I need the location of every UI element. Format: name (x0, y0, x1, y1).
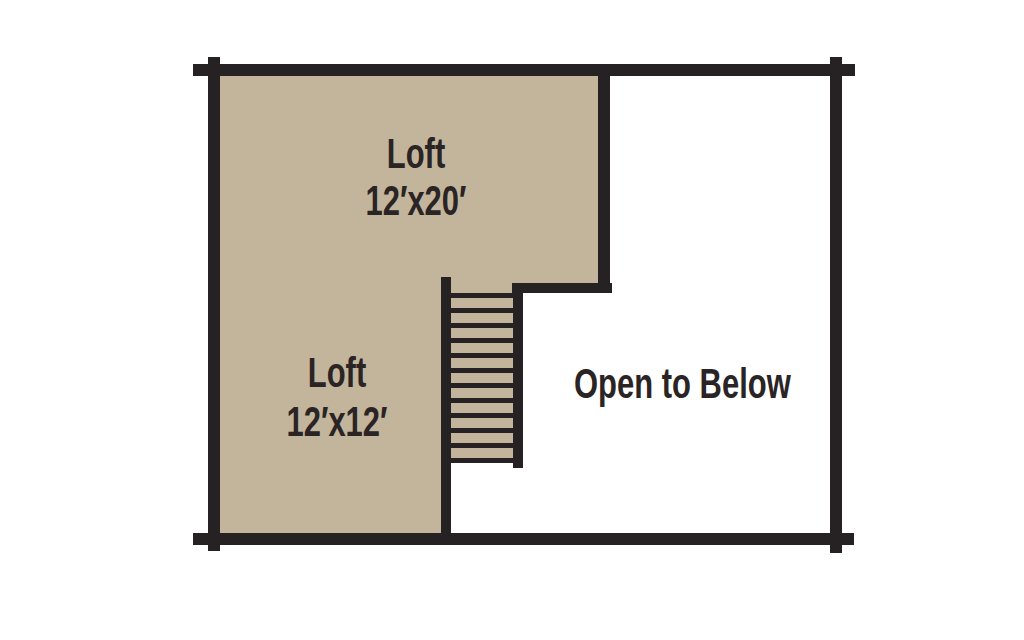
stair-tread (451, 398, 513, 403)
room-label-open-to-below: Open to Below (574, 360, 790, 406)
stair-tread (451, 293, 513, 298)
room-name: Loft (308, 130, 524, 177)
stair-tread (451, 443, 513, 448)
floor-plan: Loft 12′x20′ Loft 12′x12′ Open to Below (0, 0, 1024, 640)
stair-tread (451, 368, 513, 373)
stair-tread (451, 413, 513, 418)
stair-tread (451, 458, 513, 463)
wall-top (193, 64, 855, 76)
stair-tread (451, 308, 513, 313)
wall-right (830, 57, 842, 553)
room-name: Open to Below (574, 360, 790, 406)
room-dimensions: 12′x12′ (229, 397, 445, 446)
stair-tread (451, 338, 513, 343)
wall-staircase-right (513, 288, 523, 468)
room-dimensions: 12′x20′ (308, 177, 524, 224)
wall-loft-divider-horizontal (512, 283, 612, 293)
staircase-treads (451, 293, 513, 463)
stair-tread (451, 323, 513, 328)
room-label-loft-upper: Loft 12′x20′ (308, 130, 524, 224)
stair-tread (451, 383, 513, 388)
wall-loft-divider-vertical (598, 76, 610, 293)
wall-left (208, 57, 220, 551)
room-label-loft-lower: Loft 12′x12′ (229, 348, 445, 446)
stair-tread (451, 353, 513, 358)
room-name: Loft (229, 348, 445, 397)
wall-bottom (193, 533, 854, 545)
stair-tread (451, 428, 513, 433)
